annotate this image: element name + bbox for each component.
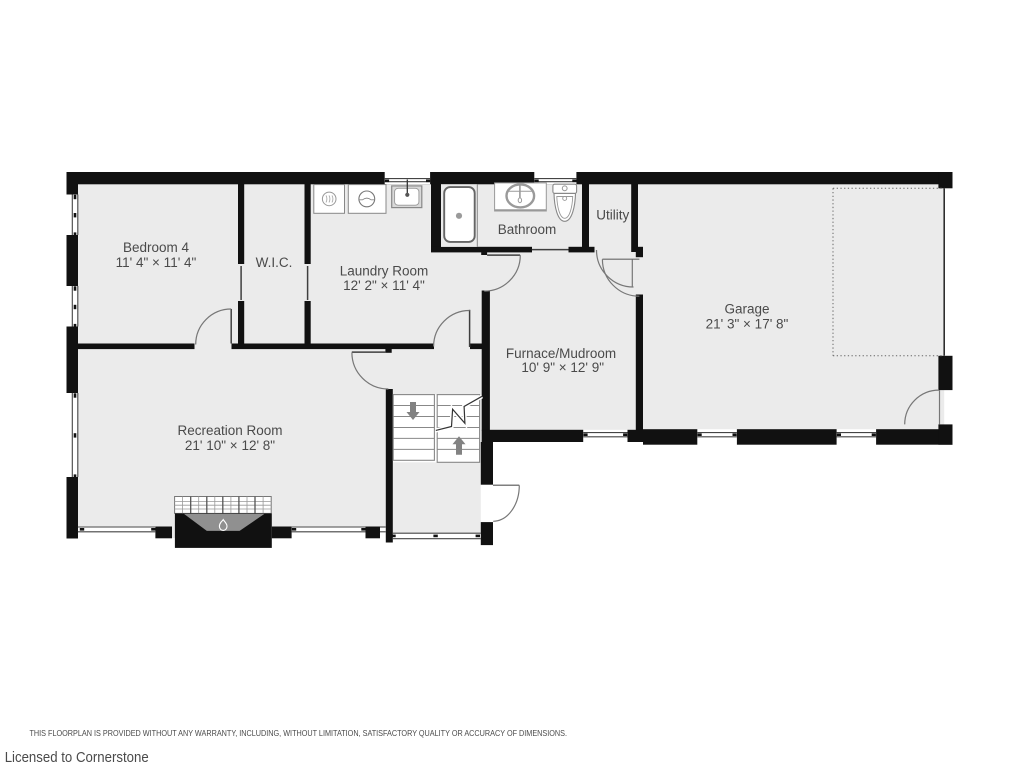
svg-text:Laundry Room: Laundry Room (340, 264, 429, 279)
svg-text:21' 3" × 17' 8": 21' 3" × 17' 8" (706, 317, 789, 332)
svg-text:Utility: Utility (596, 208, 629, 223)
svg-text:W.I.C.: W.I.C. (256, 255, 293, 270)
svg-text:11' 4" × 11' 4": 11' 4" × 11' 4" (116, 255, 197, 270)
svg-text:Licensed to Cornerstone: Licensed to Cornerstone (5, 749, 149, 766)
svg-text:THIS FLOORPLAN IS PROVIDED WIT: THIS FLOORPLAN IS PROVIDED WITHOUT ANY W… (30, 729, 568, 738)
svg-text:21' 10" × 12' 8": 21' 10" × 12' 8" (185, 438, 275, 453)
svg-text:12' 2" × 11' 4": 12' 2" × 11' 4" (343, 278, 425, 293)
svg-text:Garage: Garage (724, 302, 769, 317)
svg-text:Furnace/Mudroom: Furnace/Mudroom (506, 346, 616, 361)
svg-text:Bathroom: Bathroom (498, 222, 557, 237)
svg-text:Recreation Room: Recreation Room (177, 423, 282, 438)
svg-text:Bedroom 4: Bedroom 4 (123, 240, 190, 255)
svg-text:10' 9" × 12' 9": 10' 9" × 12' 9" (521, 360, 604, 375)
